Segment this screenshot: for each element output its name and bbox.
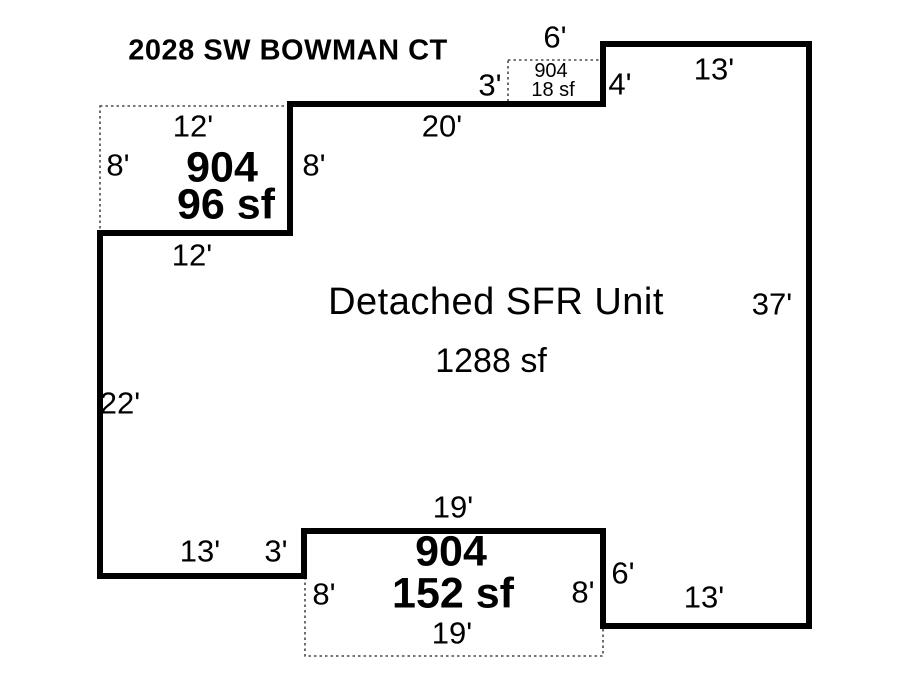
dim-porch152-top: 19' <box>433 492 473 523</box>
dim-bottom-right-step: 6' <box>611 558 634 589</box>
floorplan-sketch: 2028 SW BOWMAN CT 12' 8' 904 96 sf 8' 12… <box>0 0 900 675</box>
dim-porch18-top: 6' <box>543 22 566 53</box>
dim-porch96-left: 8' <box>106 150 129 181</box>
address-title: 2028 SW BOWMAN CT <box>128 37 447 66</box>
dim-porch18-left: 3' <box>478 70 501 101</box>
dim-right-wall: 37' <box>752 289 792 320</box>
dim-upper-step-right: 4' <box>608 69 631 100</box>
porch18-id: 904 <box>534 61 567 81</box>
unit-name: Detached SFR Unit <box>328 283 664 321</box>
porch18-area: 18 sf <box>531 80 574 100</box>
dim-bottom-left-wall: 13' <box>180 536 220 567</box>
dim-porch96-right-wall: 8' <box>302 150 325 181</box>
dim-bottom-left-step: 3' <box>264 536 287 567</box>
porch152-id: 904 <box>415 531 487 574</box>
dim-porch152-bottom: 19' <box>432 618 472 649</box>
dim-top-wall: 20' <box>422 111 462 142</box>
dim-top-right-wall: 13' <box>694 54 734 85</box>
unit-area: 1288 sf <box>435 344 547 378</box>
dim-porch96-top: 12' <box>173 111 213 142</box>
dim-bottom-right-wall: 13' <box>684 582 724 613</box>
dim-porch152-left: 8' <box>312 579 335 610</box>
dim-porch96-bottom-wall: 12' <box>172 240 212 271</box>
dim-porch152-right: 8' <box>571 577 594 608</box>
porch96-area: 96 sf <box>177 184 275 227</box>
porch152-area: 152 sf <box>392 573 514 616</box>
dim-left-wall: 22' <box>100 388 140 419</box>
